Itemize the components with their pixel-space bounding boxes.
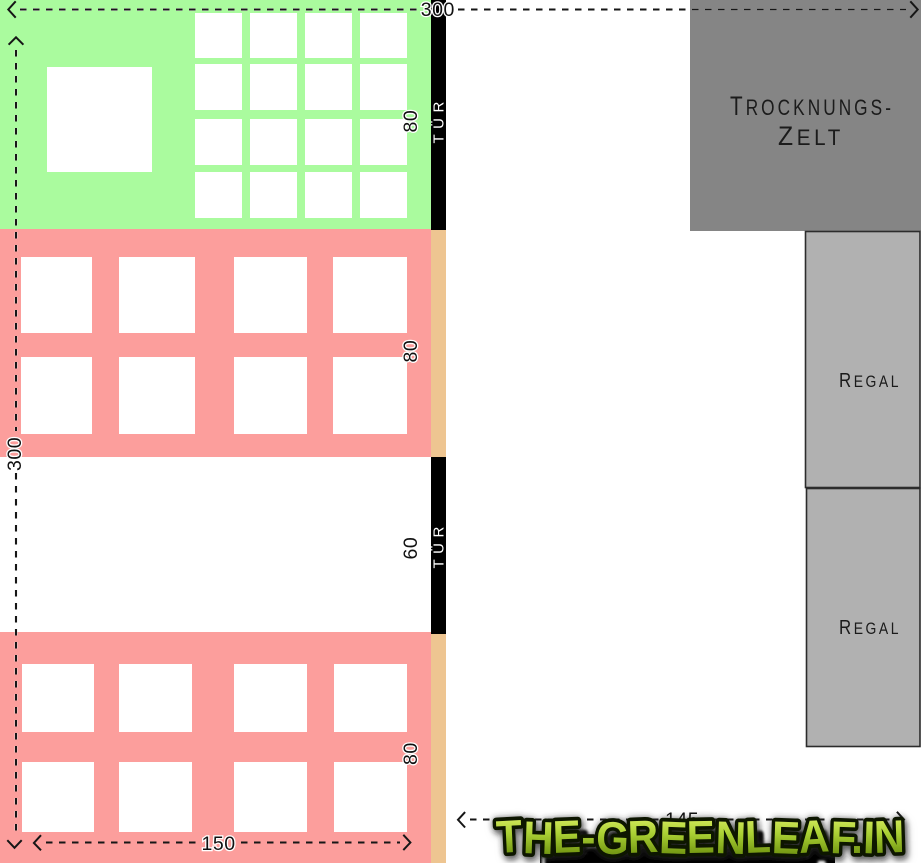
svg-text:80: 80 — [400, 110, 422, 133]
svg-text:300: 300 — [4, 437, 26, 471]
svg-text:ZELT: ZELT — [778, 121, 844, 151]
svg-text:150: 150 — [202, 833, 236, 855]
svg-text:300: 300 — [421, 0, 455, 21]
svg-text:TÜR: TÜR — [430, 521, 448, 568]
svg-text:TROCKNUNGS-: TROCKNUNGS- — [730, 91, 894, 121]
svg-text:REGAL: REGAL — [839, 617, 901, 639]
svg-text:TÜR: TÜR — [430, 96, 448, 143]
svg-text:THE-GREENLEAF.IN: THE-GREENLEAF.IN — [495, 809, 906, 863]
svg-text:REGAL: REGAL — [839, 370, 901, 392]
svg-text:60: 60 — [400, 537, 422, 560]
svg-text:80: 80 — [400, 742, 422, 765]
svg-text:80: 80 — [400, 340, 422, 363]
